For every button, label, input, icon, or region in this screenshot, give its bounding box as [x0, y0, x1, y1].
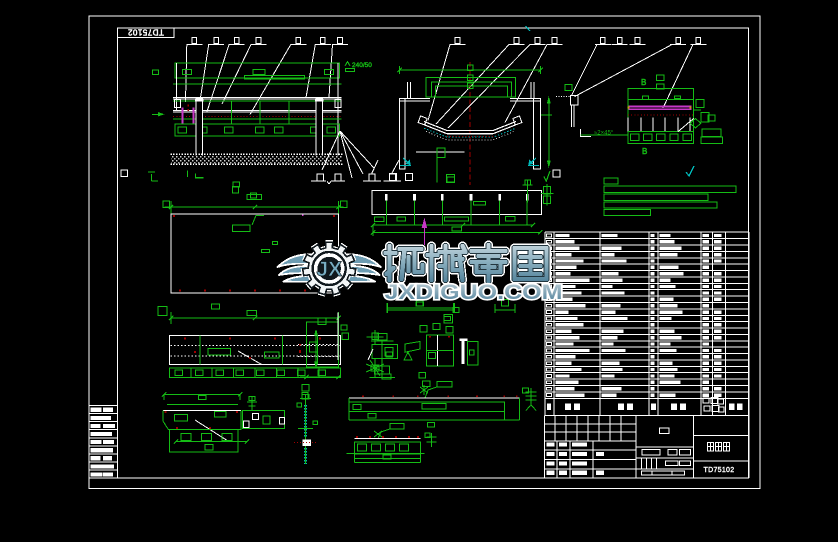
svg-text:TD75102: TD75102	[127, 28, 163, 37]
svg-text:≈2×45°: ≈2×45°	[594, 131, 614, 137]
svg-text:TD75102: TD75102	[704, 467, 735, 474]
svg-text:JX: JX	[316, 258, 342, 281]
svg-text:B: B	[642, 147, 647, 156]
svg-text:B: B	[641, 78, 646, 87]
svg-text:240/50: 240/50	[352, 62, 372, 69]
svg-text:JXDIGUO.COM: JXDIGUO.COM	[385, 281, 563, 304]
